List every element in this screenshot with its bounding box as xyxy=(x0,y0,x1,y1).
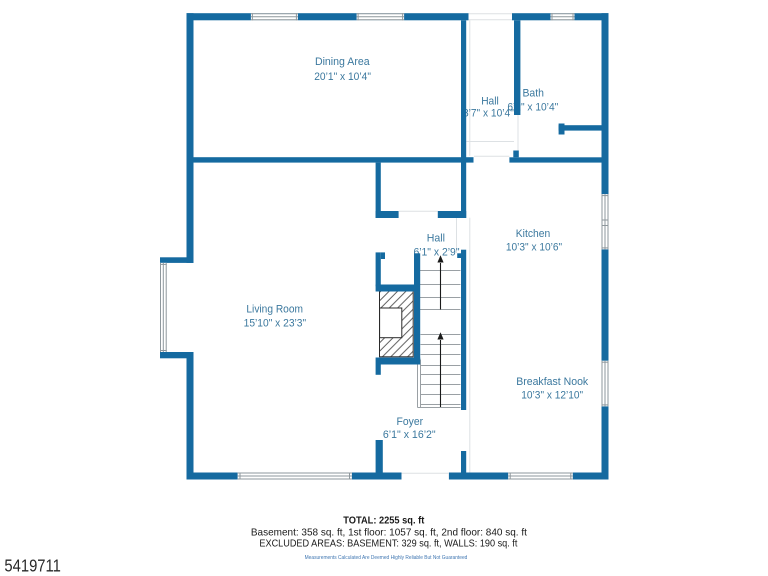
svg-text:Hall: Hall xyxy=(427,232,445,244)
svg-text:6’1" x 16’2": 6’1" x 16’2" xyxy=(383,429,436,441)
svg-text:15’10" x 23’3": 15’10" x 23’3" xyxy=(244,318,307,330)
svg-text:6’1" x 2’9": 6’1" x 2’9" xyxy=(413,247,459,259)
svg-text:20’1" x 10’4": 20’1" x 10’4" xyxy=(314,71,371,83)
svg-text:Bath: Bath xyxy=(522,87,544,99)
svg-text:10’3" x 12’10": 10’3" x 12’10" xyxy=(521,390,583,402)
svg-text:Breakfast Nook: Breakfast Nook xyxy=(516,376,589,388)
svg-text:3’7" x 10’4": 3’7" x 10’4" xyxy=(463,108,514,120)
svg-text:TOTAL: 2255 sq. ft: TOTAL: 2255 sq. ft xyxy=(343,516,425,527)
svg-text:Dining Area: Dining Area xyxy=(315,56,370,68)
svg-text:Kitchen: Kitchen xyxy=(516,228,550,240)
svg-text:Measurements Calculated Are De: Measurements Calculated Are Deemed Highl… xyxy=(305,555,468,561)
svg-text:EXCLUDED AREAS: BASEMENT: 329: EXCLUDED AREAS: BASEMENT: 329 sq. ft, WA… xyxy=(259,538,517,549)
svg-text:5419711: 5419711 xyxy=(4,556,61,576)
svg-text:10’3" x 10’6": 10’3" x 10’6" xyxy=(506,241,562,253)
svg-text:Living Room: Living Room xyxy=(246,304,303,316)
svg-text:Foyer: Foyer xyxy=(397,416,424,428)
svg-text:Hall: Hall xyxy=(481,95,499,107)
svg-text:Basement: 358 sq. ft, 1st floo: Basement: 358 sq. ft, 1st floor: 1057 sq… xyxy=(251,528,527,539)
